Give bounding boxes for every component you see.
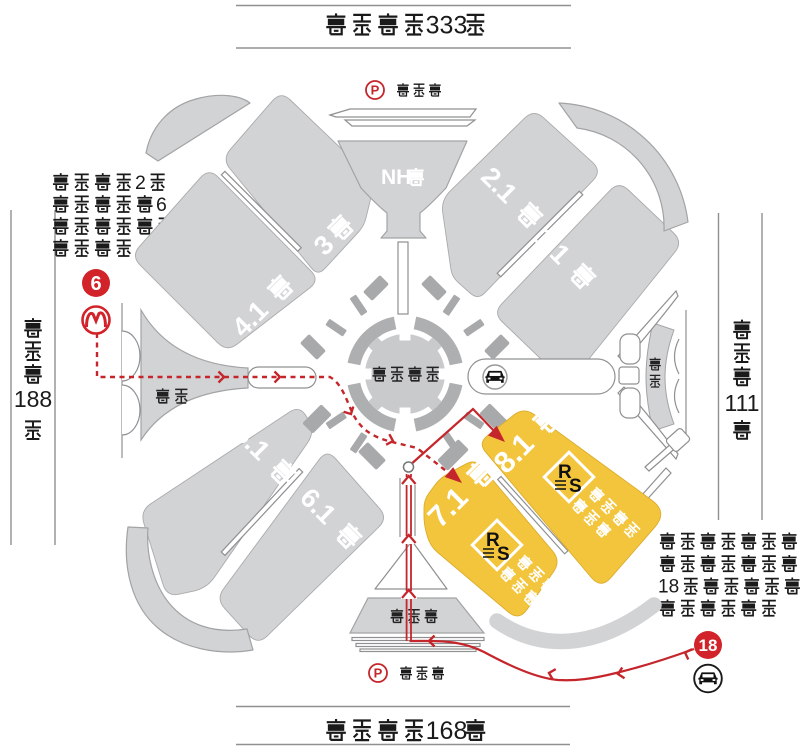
svg-text:18: 18 bbox=[699, 636, 718, 655]
svg-text:S: S bbox=[497, 544, 510, 565]
svg-text:P: P bbox=[374, 666, 383, 681]
svg-text:6: 6 bbox=[156, 194, 167, 216]
svg-text:18: 18 bbox=[658, 577, 679, 598]
svg-text:111: 111 bbox=[725, 390, 760, 416]
svg-text:NH: NH bbox=[381, 166, 411, 189]
svg-text:2: 2 bbox=[135, 172, 146, 194]
svg-text:168: 168 bbox=[426, 717, 468, 745]
svg-text:333: 333 bbox=[426, 12, 468, 40]
svg-text:P: P bbox=[371, 83, 380, 98]
svg-text:6: 6 bbox=[90, 273, 101, 295]
svg-text:S: S bbox=[569, 476, 582, 497]
svg-text:188: 188 bbox=[14, 386, 52, 412]
